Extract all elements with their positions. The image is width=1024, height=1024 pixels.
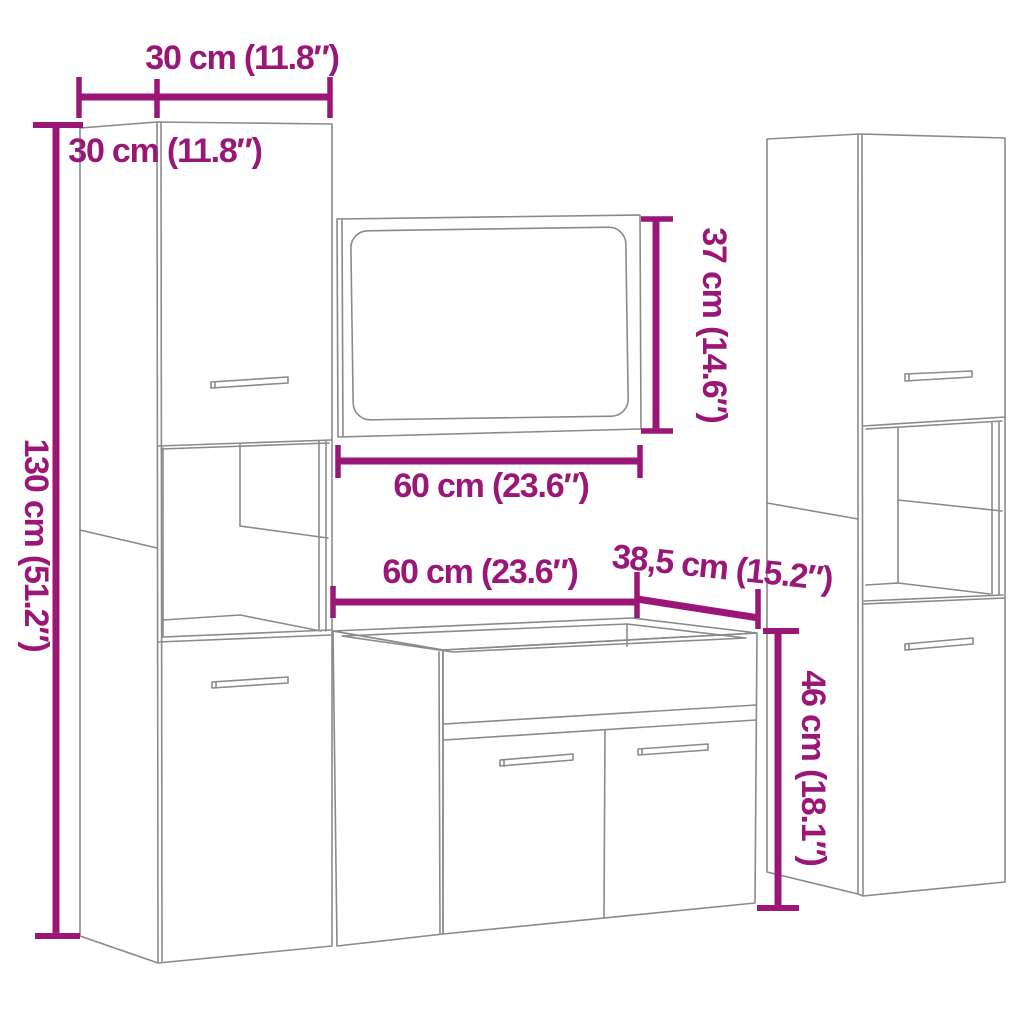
lower-door-top-edge	[863, 598, 1005, 604]
product-dimension-image: 30 cm (11.8″) 30 cm (11.8″) 130 cm (51.2…	[0, 0, 1024, 1024]
carcass-joint-back	[240, 526, 328, 538]
carcass-joint-side	[767, 503, 858, 519]
vanity-sink-cabinet	[333, 618, 757, 946]
carcass-joint-side	[80, 530, 157, 548]
mirror-frame-left-edge	[342, 219, 343, 436]
lower-door-handle	[212, 677, 288, 688]
door-divider	[604, 731, 605, 917]
upper-door-bottom-edge	[158, 440, 331, 446]
front-face	[443, 633, 757, 934]
front-left-edge-inner	[439, 652, 440, 933]
shelf-floor-right-edge	[898, 583, 990, 594]
mirror-height-label: 37 cm (14.6″)	[695, 227, 733, 422]
side-panel	[333, 631, 443, 946]
shelf-floor-back-edge	[866, 583, 898, 585]
right-door-handle	[638, 744, 708, 755]
lower-door-handle	[905, 638, 973, 650]
dim-left-cabinet-width: 30 cm (11.8″)	[79, 39, 339, 118]
dim-vanity-width: 60 cm (23.6″)	[333, 553, 637, 618]
shelf-floor-right-edge	[240, 615, 321, 631]
shelf-floor-back-edge	[163, 615, 240, 620]
dim-left-cabinet-depth: 30 cm (11.8″)	[68, 132, 261, 170]
upper-door-handle	[905, 371, 972, 381]
doors-top-edge	[444, 720, 756, 740]
dim-vanity-height: 46 cm (18.1″)	[757, 631, 832, 908]
vanity-height-label: 46 cm (18.1″)	[794, 670, 832, 865]
upper-door-handle	[211, 377, 288, 388]
bathroom-furniture-dimension-diagram: 30 cm (11.8″) 30 cm (11.8″) 130 cm (51.2…	[0, 0, 1024, 1024]
mirror-frame	[337, 215, 641, 437]
cabinet-outline	[80, 122, 332, 963]
carcass-joint-back	[898, 500, 1002, 511]
apron-bottom-edge	[444, 705, 756, 724]
side-front-edge-inner	[862, 134, 863, 895]
vanity-depth-label: 38,5 cm (15.2″)	[610, 538, 834, 599]
side-front-edge	[157, 122, 158, 962]
shelf-opening-bottom-edge	[864, 595, 1003, 601]
left-tall-cabinet	[80, 122, 332, 963]
vanity-width-label: 60 cm (23.6″)	[382, 553, 577, 591]
dim-vanity-depth: 38,5 cm (15.2″)	[610, 538, 834, 629]
left-cabinet-height-label: 130 cm (51.2″)	[17, 438, 55, 651]
upper-door-bottom-edge-inner	[161, 443, 329, 449]
left-cabinet-width-label: 30 cm (11.8″)	[145, 39, 338, 77]
dim-mirror-height: 37 cm (14.6″)	[641, 219, 733, 431]
mirror-glass	[351, 227, 629, 420]
wall-mirror	[337, 215, 641, 437]
left-door-handle	[500, 754, 573, 766]
mirror-width-label: 60 cm (23.6″)	[393, 467, 588, 505]
dim-left-cabinet-height: 130 cm (51.2″)	[17, 125, 83, 936]
dim-mirror-width: 60 cm (23.6″)	[338, 445, 640, 505]
side-front-edge-inner	[161, 122, 162, 961]
dimension-annotations: 30 cm (11.8″) 30 cm (11.8″) 130 cm (51.2…	[17, 39, 834, 936]
dim-line	[637, 599, 759, 618]
left-cabinet-depth-label: 30 cm (11.8″)	[68, 132, 261, 170]
